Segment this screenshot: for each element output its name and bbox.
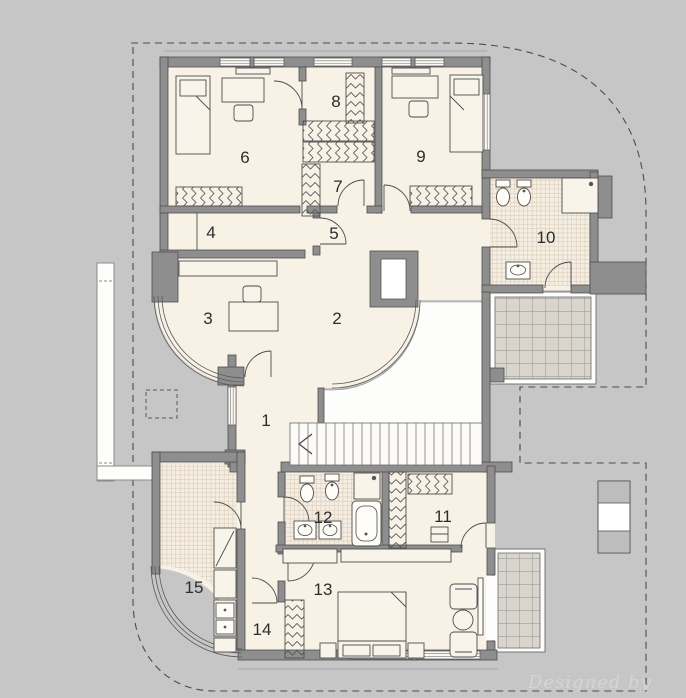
room-number-12: 12	[314, 508, 333, 527]
window-hall	[228, 387, 236, 425]
shelf	[341, 549, 451, 562]
balcony-room13	[493, 549, 545, 652]
round-table	[453, 610, 473, 630]
wardrobe	[285, 600, 304, 658]
wall-bath10-top	[482, 170, 598, 178]
wardrobe	[303, 142, 374, 162]
shelf	[283, 549, 337, 563]
wall-right-mid	[482, 292, 490, 472]
armchair	[450, 584, 477, 609]
wall-corridor5-bottom	[160, 250, 305, 258]
toilet	[496, 180, 510, 206]
wall-room3-corner	[152, 252, 178, 302]
room-number-4: 4	[206, 223, 215, 242]
room-number-6: 6	[240, 148, 249, 167]
floor-plan-drawing: 1 2 3 4 5 6 7 8 9 10 11 12 13 14 15 Desi…	[0, 0, 686, 698]
room-number-3: 3	[203, 309, 212, 328]
chimney-block-right	[598, 481, 630, 553]
stair-flight	[290, 423, 482, 465]
room8-furniture	[346, 73, 364, 123]
nightstand	[320, 643, 336, 658]
stairs	[290, 423, 482, 465]
window-room8	[314, 58, 352, 66]
chair	[409, 101, 428, 117]
bathtub	[352, 501, 381, 546]
wardrobe	[408, 474, 452, 494]
chair	[234, 105, 253, 121]
nightstand	[408, 643, 424, 658]
wall-room15-left	[152, 452, 160, 574]
bidet	[517, 180, 531, 206]
chimney-room2	[370, 251, 418, 307]
room-number-2: 2	[332, 309, 341, 328]
shelf	[392, 68, 430, 74]
pergola-strip	[97, 263, 114, 481]
wardrobe	[302, 164, 320, 216]
wardrobe	[176, 187, 242, 206]
wall-room6-bottom	[160, 206, 300, 213]
site-dashed-square	[146, 390, 177, 418]
room-number-9: 9	[416, 147, 425, 166]
chair	[243, 286, 261, 302]
side-table	[431, 527, 448, 542]
pillow	[454, 79, 479, 95]
sink	[506, 262, 530, 279]
shower	[562, 178, 598, 213]
pillow	[180, 80, 206, 96]
room15-furniture	[214, 528, 236, 652]
window-room6	[220, 57, 284, 67]
wall-left-upper	[160, 57, 168, 263]
room14-furniture	[285, 600, 304, 658]
room-number-13: 13	[314, 580, 333, 599]
toilet	[300, 476, 314, 502]
room-number-5: 5	[329, 224, 338, 243]
wall-bath10-jog	[590, 262, 646, 294]
cabinet	[214, 570, 236, 598]
room-number-8: 8	[331, 92, 340, 111]
wall-room15-right	[237, 529, 245, 650]
wardrobe	[389, 472, 406, 548]
wall-room8-9	[375, 67, 382, 213]
desk	[229, 302, 278, 331]
cabinet	[214, 638, 236, 652]
sink-unit	[214, 600, 236, 636]
desk	[222, 78, 264, 102]
wall-room15-top	[152, 452, 245, 462]
bidet	[325, 474, 339, 500]
room-number-11: 11	[434, 507, 452, 526]
terrace-east	[486, 292, 596, 384]
pillow	[373, 645, 400, 656]
armchair	[450, 632, 477, 657]
room-number-1: 1	[261, 411, 270, 430]
room-number-7: 7	[333, 177, 342, 196]
pillow	[343, 645, 370, 656]
wardrobe	[303, 121, 374, 141]
room-number-14: 14	[253, 620, 272, 639]
floor-plan-canvas: 1 2 3 4 5 6 7 8 9 10 11 12 13 14 15 Desi…	[0, 0, 686, 698]
shower	[354, 473, 380, 499]
pergola-connector	[97, 466, 153, 480]
room-number-10: 10	[537, 228, 556, 247]
watermark-text: Designed by	[527, 672, 652, 693]
desk	[392, 76, 438, 98]
door-balcony13	[478, 576, 496, 640]
wall-room9-bottom	[411, 206, 490, 213]
shelf	[179, 261, 277, 276]
wall-bath12-right	[382, 472, 389, 548]
shelf	[236, 68, 270, 74]
wardrobe	[346, 73, 364, 123]
room-number-15: 15	[185, 578, 204, 597]
window-room9	[382, 57, 444, 67]
wardrobe	[410, 186, 472, 206]
